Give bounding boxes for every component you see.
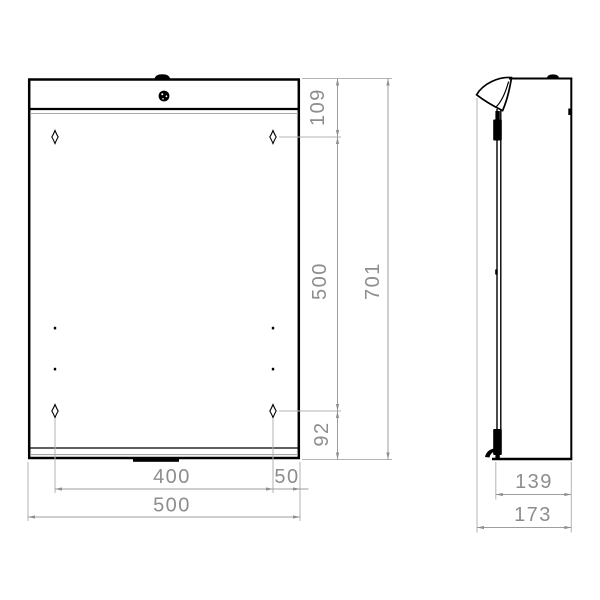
side-mid-tick-icon [495, 270, 497, 275]
side-top-latch-pin-icon [495, 111, 499, 120]
keyhole-bottom-right-icon [270, 405, 276, 418]
screw-dot-icon [54, 327, 56, 330]
dispenser-dimension-drawing: 109 500 92 701 400 50 500 [0, 0, 600, 600]
front-lock-pin-icon [161, 93, 163, 95]
side-top-knob-icon [547, 74, 560, 78]
arrow-down-icon [336, 404, 339, 411]
side-dimensions: 139 173 [477, 98, 571, 533]
arrow-right-icon [293, 515, 300, 518]
front-top-knob-icon [155, 74, 171, 79]
side-hood-inner-line [496, 82, 508, 107]
dim-label-500-vertical: 500 [309, 262, 331, 300]
dimension-arrows [28, 79, 390, 519]
dim-label-50: 50 [274, 466, 299, 488]
front-view [29, 74, 299, 462]
arrow-right-icon [564, 493, 571, 496]
side-hood-icon [477, 77, 512, 110]
dim-label-400: 400 [153, 466, 191, 488]
keyhole-bottom-left-icon [52, 405, 58, 418]
dim-label-139: 139 [515, 471, 553, 493]
front-lock-pin-icon [162, 98, 164, 100]
dim-label-500-width: 500 [153, 495, 191, 517]
arrow-left-icon [496, 493, 503, 496]
side-top-latch-icon [493, 120, 502, 141]
keyhole-top-left-icon [52, 131, 58, 144]
arrow-left-icon [28, 515, 35, 518]
arrow-down-icon [386, 453, 389, 460]
screw-dot-icon [54, 368, 56, 371]
arrow-right-icon [266, 487, 273, 490]
keyhole-top-right-icon [270, 131, 276, 144]
dim-label-109: 109 [307, 88, 329, 126]
front-bottom-tab-icon [133, 458, 179, 462]
arrow-up-icon [336, 411, 339, 418]
arrow-left-icon [55, 487, 62, 490]
dim-label-173: 173 [514, 504, 552, 526]
side-hinge-tick-icon [568, 109, 572, 116]
screw-dot-icon [272, 327, 274, 330]
arrow-left-icon [477, 526, 484, 529]
front-lock-pin-icon [166, 95, 168, 97]
arrow-up-icon [386, 79, 389, 86]
arrow-down-icon [336, 130, 339, 137]
dim-label-701: 701 [362, 262, 384, 300]
dim-label-92: 92 [311, 421, 333, 446]
arrow-up-icon [336, 137, 339, 144]
technical-drawing-canvas: 109 500 92 701 400 50 500 [0, 0, 600, 600]
screw-dot-icon [272, 368, 274, 371]
arrow-up-icon [336, 79, 339, 86]
front-lock-icon [159, 91, 170, 102]
arrow-right-icon [564, 526, 571, 529]
side-bottom-latch-pin-icon [495, 452, 499, 460]
side-view [477, 74, 573, 460]
mounting-keyholes [52, 131, 276, 418]
front-cabinet-body [29, 80, 299, 459]
arrow-down-icon [336, 453, 339, 460]
